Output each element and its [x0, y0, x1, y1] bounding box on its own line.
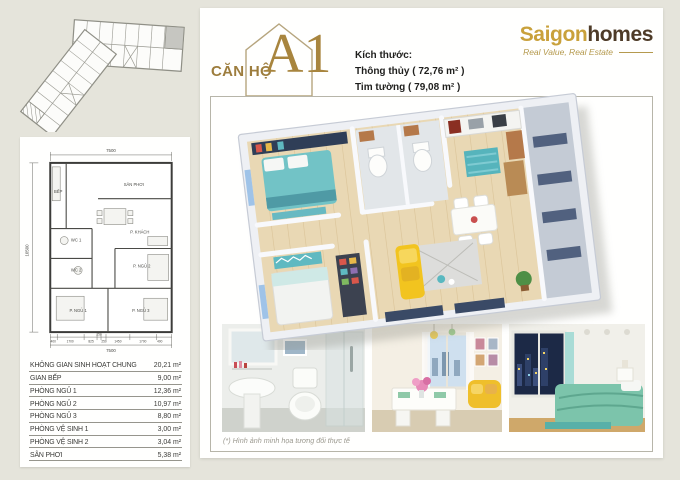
room-ngu1: P. NGỦ 1: [69, 308, 87, 313]
size-label: Kích thước:: [355, 48, 464, 64]
dim-bottom-total: 7500: [106, 348, 116, 353]
row-value: 8,80: [158, 413, 171, 420]
row-value: 5,38: [158, 452, 171, 459]
room-ngu3: P. NGỦ 3: [132, 308, 150, 313]
sidebar-panel: 7500 10500 400 1700 825 250 250 1450 170…: [20, 137, 190, 467]
row-value: 9,00: [158, 375, 171, 382]
row-unit: m²: [173, 439, 181, 446]
table-row: PHÒNG VỆ SINH 1 3,00 m²: [29, 423, 182, 436]
table-row: GIAN BẾP 9,00 m²: [29, 372, 182, 385]
desk: [503, 160, 527, 196]
row-value: 12,36: [154, 388, 171, 395]
room-san-phoi: SÂN PHƠI: [124, 182, 144, 187]
room-wc1: WC 1: [71, 238, 82, 243]
area-table: KHÔNG GIAN SINH HOẠT CHUNG 20,21 m² GIAN…: [29, 359, 182, 461]
size-specs: Kích thước: Thông thủy ( 72,76 m² ) Tim …: [355, 48, 464, 96]
svg-text:825: 825: [88, 340, 94, 344]
unit-code: A1: [263, 26, 331, 82]
key-plan-highlighted-unit: [165, 26, 184, 49]
row-label: GIAN BẾP: [30, 375, 61, 382]
yellow-sofa: [468, 380, 501, 408]
logo-tagline: Real Value, Real Estate: [523, 47, 613, 57]
dim-bottom-segments: 400 1700 825 250 250 1450 1700 400: [51, 333, 163, 344]
row-unit: m²: [173, 388, 181, 395]
svg-text:1450: 1450: [114, 340, 121, 344]
row-unit: m²: [173, 401, 181, 408]
key-plan-left-wing: [21, 30, 117, 132]
row-label: SÂN PHƠI: [30, 452, 62, 459]
svg-text:250: 250: [96, 333, 102, 337]
floorplan-3d: [212, 92, 648, 350]
table-row: KHÔNG GIAN SINH HOẠT CHUNG 20,21 m²: [29, 359, 182, 372]
row-unit: m²: [173, 426, 181, 433]
toilet-tank: [293, 368, 317, 388]
size-net: Thông thủy ( 72,76 m² ): [355, 64, 464, 80]
row-value: 3,04: [158, 439, 171, 446]
row-value: 3,00: [158, 426, 171, 433]
row-unit: m²: [173, 413, 181, 420]
row-value: 10,97: [154, 401, 171, 408]
row-unit: m²: [173, 375, 181, 382]
room-ngu2: P. NGỦ 2: [133, 263, 151, 268]
row-label: PHÒNG NGỦ 2: [30, 401, 77, 408]
table-row: PHÒNG NGỦ 1 12,36 m²: [29, 385, 182, 398]
row-label: PHÒNG VỆ SINH 1: [30, 426, 88, 433]
row-value: 20,21: [154, 362, 171, 369]
building-key-plan: [6, 4, 192, 132]
row-label: PHÒNG NGỦ 3: [30, 413, 77, 420]
row-unit: m²: [173, 452, 181, 459]
table-row: SÂN PHƠI 5,38 m²: [29, 448, 182, 461]
building-key-plan-drawing: [6, 4, 192, 132]
rug: [545, 422, 611, 429]
svg-text:1700: 1700: [67, 340, 74, 344]
brand-logo: Saigonhomes Real Value, Real Estate: [520, 24, 653, 57]
table-row: PHÒNG NGỦ 2 10,97 m²: [29, 397, 182, 410]
svg-text:400: 400: [51, 340, 57, 344]
floorplan-2d: 7500 10500 400 1700 825 250 250 1450 170…: [20, 141, 190, 355]
room-bep: BẾP: [54, 189, 63, 194]
svg-text:400: 400: [157, 340, 163, 344]
photo-caption: (*) Hình ảnh minh họa tương đối thực tế: [223, 436, 350, 445]
row-label: PHÒNG NGỦ 1: [30, 388, 77, 395]
bed: [555, 380, 643, 426]
row-label: KHÔNG GIAN SINH HOẠT CHUNG: [30, 362, 137, 369]
table-row: PHÒNG NGỦ 3 8,80 m²: [29, 410, 182, 423]
bathrooms: [355, 120, 448, 210]
room-wc2: WC 2: [71, 267, 82, 272]
main-card: CĂN HỘ A1 Kích thước: Thông thủy ( 72,76…: [200, 8, 663, 458]
room-khach: P. KHÁCH: [130, 230, 149, 235]
svg-text:1700: 1700: [139, 340, 146, 344]
logo-part1: Saigon: [520, 23, 588, 46]
table-row: PHÒNG VỆ SINH 2 3,04 m²: [29, 436, 182, 449]
dim-top: 7500: [106, 148, 116, 153]
tagline-rule: [619, 52, 653, 53]
dim-left: 10500: [24, 244, 29, 257]
row-label: PHÒNG VỆ SINH 2: [30, 439, 88, 446]
logo-part2: homes: [587, 23, 653, 46]
svg-text:250: 250: [101, 340, 107, 344]
nightstand: [617, 368, 633, 381]
row-unit: m²: [173, 362, 181, 369]
